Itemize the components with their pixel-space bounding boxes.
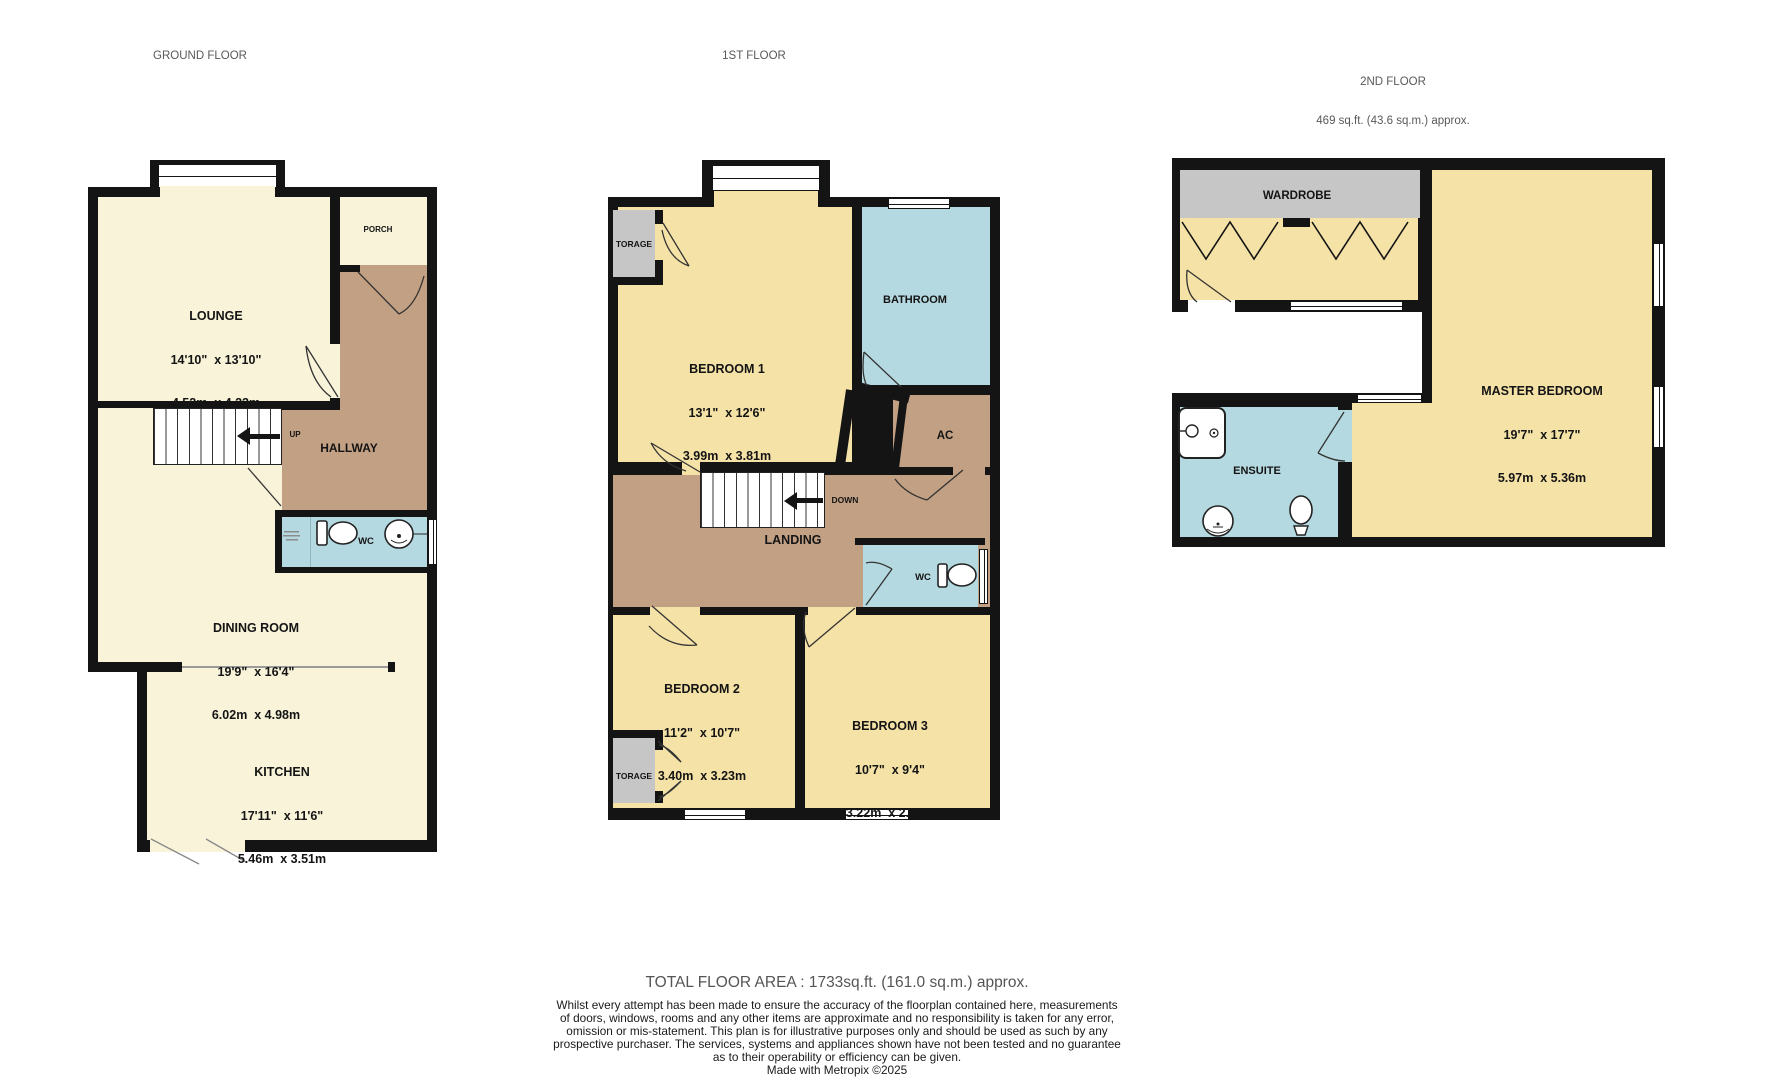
second-floor-plan: WARDROBE MASTER BEDROOM 19'7" x 17'7" 5.… xyxy=(0,0,1789,1080)
disclaimer-line: prospective purchaser. The services, sys… xyxy=(477,1038,1197,1051)
master-name: MASTER BEDROOM xyxy=(1422,384,1662,399)
disclaimer-line: as to their operability or efficiency ca… xyxy=(477,1051,1197,1064)
sink-icon xyxy=(1203,506,1233,536)
toilet-icon xyxy=(1290,496,1312,535)
total-floor-area: TOTAL FLOOR AREA : 1733sq.ft. (161.0 sq.… xyxy=(487,974,1187,992)
wardrobe-bifold-doors xyxy=(1182,222,1408,259)
master-imperial: 19'7" x 17'7" xyxy=(1422,428,1662,443)
disclaimer-line: omission or mis-statement. This plan is … xyxy=(477,1025,1197,1038)
disclaimer-line: Whilst every attempt has been made to en… xyxy=(477,999,1197,1012)
shower-icon xyxy=(1179,408,1225,458)
wardrobe-label: WARDROBE xyxy=(1237,190,1357,202)
metropix-credit: Made with Metropix ©2025 xyxy=(477,1064,1197,1077)
disclaimer-line: of doors, windows, rooms and any other i… xyxy=(477,1012,1197,1025)
floorplan-page: GROUND FLOOR 1ST FLOOR 2ND FLOOR 469 sq.… xyxy=(0,0,1789,1080)
ensuite-label: ENSUITE xyxy=(1207,466,1307,478)
master-bedroom-label: MASTER BEDROOM 19'7" x 17'7" 5.97m x 5.3… xyxy=(1422,355,1662,515)
master-metric: 5.97m x 5.36m xyxy=(1422,471,1662,486)
disclaimer: Whilst every attempt has been made to en… xyxy=(477,999,1197,1076)
